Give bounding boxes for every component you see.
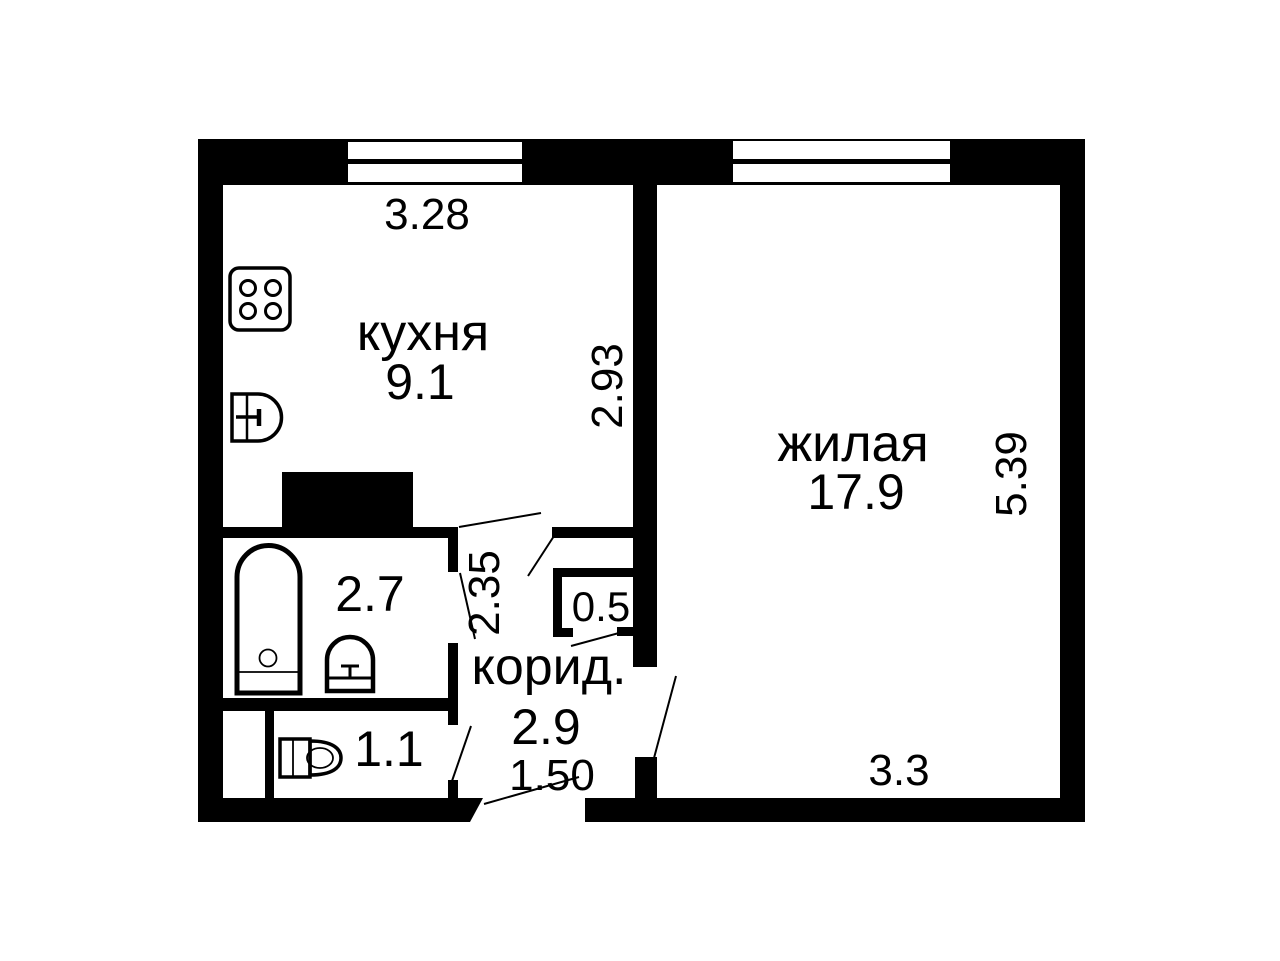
wall-right xyxy=(1060,139,1085,822)
wall-closet-bottom-left xyxy=(553,628,573,637)
toilet-area-value: 1.1 xyxy=(354,721,424,777)
vent-shaft-block xyxy=(282,472,413,527)
corridor-room-label: корид. xyxy=(471,638,626,696)
bathroom-area-value: 2.7 xyxy=(335,566,405,622)
living-window-icon xyxy=(733,141,950,182)
living-width-dimension: 3.3 xyxy=(868,746,929,795)
wall-bottom-right-segment xyxy=(585,798,1085,822)
wall-living-door-lower-block xyxy=(635,757,657,798)
living-area-value: 17.9 xyxy=(807,464,904,520)
closet-area-value: 0.5 xyxy=(572,583,630,630)
wall-kitchen-bottom-left xyxy=(223,527,458,538)
wall-bathroom-right-upper xyxy=(448,538,458,572)
wall-bathroom-right-lower xyxy=(448,643,458,698)
corridor-depth-dimension: 2.35 xyxy=(460,550,509,636)
wall-toilet-right-upper xyxy=(448,711,458,725)
wall-kitchen-bottom-right xyxy=(552,527,635,538)
entrance-width-dimension: 1.50 xyxy=(509,751,595,800)
kitchen-depth-dimension: 2.93 xyxy=(583,343,632,429)
kitchen-area-value: 9.1 xyxy=(385,354,455,410)
wall-left xyxy=(198,139,223,822)
wall-top xyxy=(198,139,1085,185)
wall-bath-toilet-divider xyxy=(223,698,458,711)
wall-toilet-right-lower xyxy=(448,780,458,798)
wall-closet-top xyxy=(553,568,635,577)
wall-toilet-niche-partition xyxy=(265,711,274,798)
floor-plan-canvas: 3.28 кухня 9.1 2.93 жилая 17.9 5.39 3.3 … xyxy=(0,0,1280,961)
wall-kitchen-living xyxy=(633,184,657,667)
wall-closet-left xyxy=(553,568,562,637)
kitchen-window-icon xyxy=(348,142,522,182)
floor-plan-page: 3.28 кухня 9.1 2.93 жилая 17.9 5.39 3.3 … xyxy=(0,0,1280,961)
living-depth-dimension: 5.39 xyxy=(987,431,1036,517)
kitchen-width-dimension: 3.28 xyxy=(384,190,470,239)
corridor-area-value: 2.9 xyxy=(511,699,581,755)
wall-bottom-left-segment xyxy=(198,798,483,822)
